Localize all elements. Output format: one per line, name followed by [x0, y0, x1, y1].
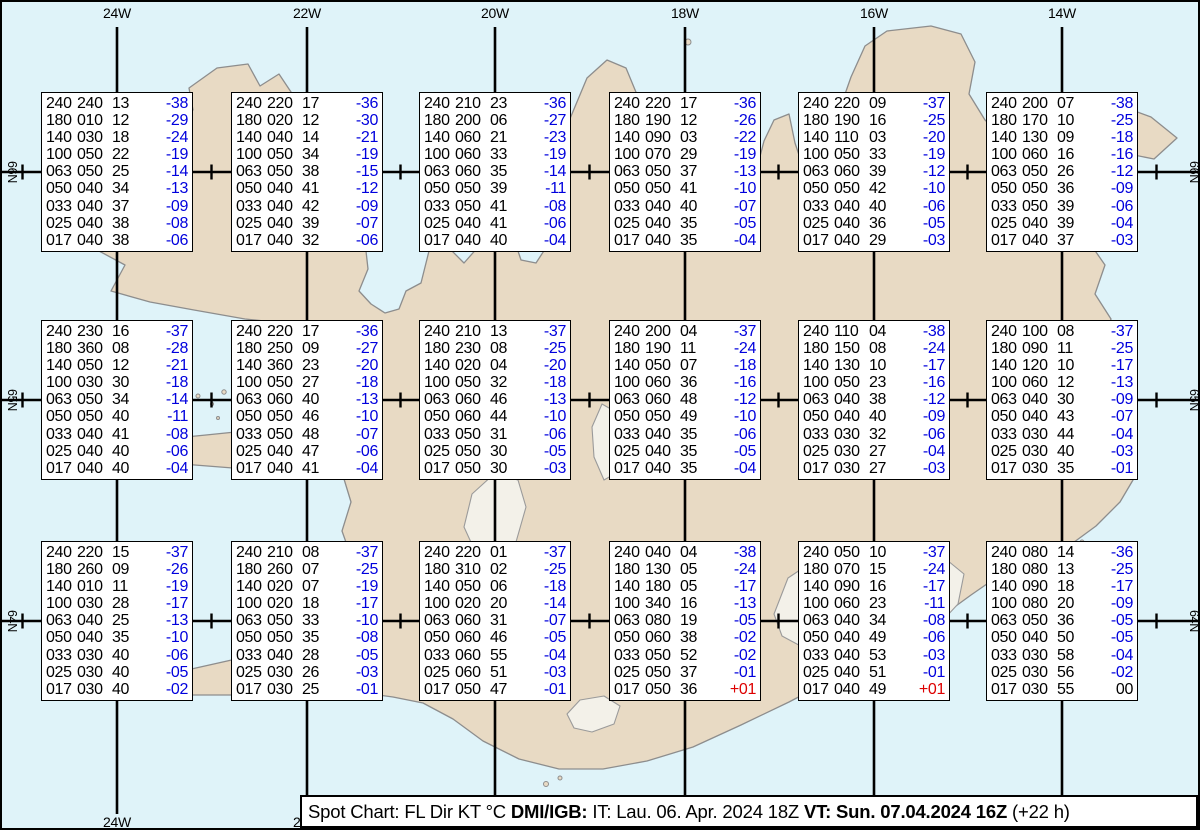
flight-level-value: 025 — [236, 443, 267, 460]
wind-direction-value: 090 — [834, 578, 869, 595]
station-level-row: 14004014-21 — [236, 129, 378, 146]
temperature-value: -09 — [897, 408, 945, 425]
station-level-row: 18031002-25 — [424, 561, 566, 578]
station-level-row: 03305039-06 — [991, 198, 1133, 215]
temperature-value: -37 — [708, 323, 756, 340]
flight-level-value: 033 — [424, 426, 455, 443]
temperature-value: -17 — [1085, 578, 1133, 595]
station-level-row: 02504041-06 — [424, 215, 566, 232]
flight-level-value: 025 — [614, 215, 645, 232]
wind-direction-value: 110 — [834, 323, 869, 340]
station-level-row: 02503026-03 — [236, 664, 378, 681]
station-level-row: 06306046-13 — [424, 391, 566, 408]
station-level-row: 05005042-10 — [803, 180, 945, 197]
wind-direction-value: 020 — [267, 578, 302, 595]
wind-speed-value: 31 — [490, 426, 518, 443]
flight-level-value: 140 — [424, 578, 455, 595]
temperature-value: -04 — [330, 460, 378, 477]
temperature-value: -24 — [708, 340, 756, 357]
wind-speed-value: 28 — [302, 647, 330, 664]
wind-speed-value: 09 — [869, 95, 897, 112]
spot-chart-map: 24W22W20W18W16W14W 24W22W20W18W16W14W 66… — [0, 0, 1200, 830]
temperature-value: -37 — [330, 544, 378, 561]
station-level-row: 10002020-14 — [424, 595, 566, 612]
wind-direction-value: 010 — [77, 112, 112, 129]
flight-level-value: 050 — [236, 408, 267, 425]
wind-speed-value: 53 — [869, 647, 897, 664]
temperature-value: -06 — [140, 647, 188, 664]
station-level-row: 02504039-04 — [991, 215, 1133, 232]
station-level-row: 05004040-09 — [803, 408, 945, 425]
temperature-value: -04 — [518, 232, 566, 249]
wind-speed-value: 36 — [1057, 612, 1085, 629]
station-level-row: 06306040-13 — [236, 391, 378, 408]
temperature-value: -04 — [1085, 647, 1133, 664]
station-level-row: 02503056-02 — [991, 664, 1133, 681]
flight-level-value: 025 — [614, 664, 645, 681]
temperature-value: -08 — [330, 629, 378, 646]
station-level-row: 24004004-38 — [614, 544, 756, 561]
wind-speed-value: 06 — [490, 112, 518, 129]
wind-speed-value: 35 — [680, 215, 708, 232]
wind-direction-value: 040 — [267, 180, 302, 197]
flight-level-value: 140 — [991, 578, 1022, 595]
wind-direction-value: 210 — [455, 95, 490, 112]
flight-level-value: 033 — [236, 198, 267, 215]
station-level-row: 02504035-05 — [614, 215, 756, 232]
station-level-row: 05006046-05 — [424, 629, 566, 646]
wind-speed-value: 03 — [680, 129, 708, 146]
station-level-row: 06305038-15 — [236, 163, 378, 180]
station-level-row: 14009018-17 — [991, 578, 1133, 595]
temperature-value: -37 — [518, 544, 566, 561]
temperature-value: -06 — [518, 215, 566, 232]
temperature-value: +01 — [708, 681, 756, 698]
temperature-value: -16 — [708, 374, 756, 391]
flight-level-value: 063 — [236, 391, 267, 408]
wind-speed-value: 07 — [302, 578, 330, 595]
wind-direction-value: 040 — [77, 215, 112, 232]
temperature-value: -05 — [330, 647, 378, 664]
wind-direction-value: 040 — [1022, 232, 1057, 249]
flight-level-value: 063 — [46, 612, 77, 629]
station-level-row: 24024013-38 — [46, 95, 188, 112]
flight-level-value: 140 — [236, 357, 267, 374]
wind-direction-value: 070 — [645, 146, 680, 163]
flight-level-value: 025 — [236, 215, 267, 232]
wind-direction-value: 030 — [77, 129, 112, 146]
temperature-value: -06 — [1085, 198, 1133, 215]
temperature-value: -02 — [708, 647, 756, 664]
wind-direction-value: 020 — [267, 595, 302, 612]
wind-direction-value: 240 — [77, 95, 112, 112]
temperature-value: -03 — [518, 460, 566, 477]
wind-direction-value: 040 — [1022, 215, 1057, 232]
flight-level-value: 017 — [991, 232, 1022, 249]
wind-speed-value: 37 — [112, 198, 140, 215]
flight-level-value: 240 — [614, 323, 645, 340]
station-level-row: 01704040-04 — [424, 232, 566, 249]
wind-direction-value: 040 — [834, 391, 869, 408]
temperature-value: -06 — [140, 443, 188, 460]
flight-level-value: 100 — [424, 374, 455, 391]
station-level-row: 18025009-27 — [236, 340, 378, 357]
station-data-box: 24024013-3818001012-2914003018-241000502… — [41, 92, 193, 252]
wind-speed-value: 32 — [302, 232, 330, 249]
wind-direction-value: 040 — [834, 215, 869, 232]
wind-direction-value: 040 — [834, 232, 869, 249]
flight-level-value: 033 — [803, 426, 834, 443]
wind-speed-value: 14 — [1057, 544, 1085, 561]
flight-level-value: 240 — [991, 544, 1022, 561]
wind-direction-value: 040 — [267, 460, 302, 477]
station-level-row: 01703040-02 — [46, 681, 188, 698]
temperature-value: -06 — [897, 198, 945, 215]
wind-direction-value: 080 — [645, 612, 680, 629]
wind-speed-value: 08 — [112, 340, 140, 357]
wind-direction-value: 030 — [1022, 443, 1057, 460]
wind-direction-value: 060 — [455, 664, 490, 681]
station-level-row: 10005032-18 — [424, 374, 566, 391]
wind-direction-value: 090 — [1022, 340, 1057, 357]
temperature-value: -05 — [140, 664, 188, 681]
title-bar-segment: Spot Chart: FL Dir KT °C — [308, 801, 511, 822]
station-level-row: 01704049+01 — [803, 681, 945, 698]
wind-speed-value: 34 — [869, 612, 897, 629]
flight-level-value: 240 — [614, 544, 645, 561]
wind-direction-value: 100 — [1022, 323, 1057, 340]
wind-speed-value: 07 — [680, 357, 708, 374]
lon-label-top: 20W — [481, 6, 509, 21]
wind-speed-value: 30 — [1057, 391, 1085, 408]
station-level-row: 10006012-13 — [991, 374, 1133, 391]
wind-direction-value: 010 — [77, 578, 112, 595]
wind-speed-value: 37 — [680, 163, 708, 180]
flight-level-value: 033 — [46, 426, 77, 443]
wind-direction-value: 060 — [645, 374, 680, 391]
wind-speed-value: 07 — [302, 561, 330, 578]
flight-level-value: 140 — [46, 129, 77, 146]
wind-direction-value: 190 — [645, 112, 680, 129]
flight-level-value: 063 — [424, 612, 455, 629]
flight-level-value: 100 — [424, 146, 455, 163]
station-level-row: 14036023-20 — [236, 357, 378, 374]
wind-speed-value: 49 — [680, 408, 708, 425]
temperature-value: -36 — [330, 95, 378, 112]
flight-level-value: 180 — [424, 561, 455, 578]
wind-direction-value: 220 — [455, 544, 490, 561]
temperature-value: -11 — [140, 408, 188, 425]
temperature-value: -25 — [518, 561, 566, 578]
temperature-value: -38 — [140, 95, 188, 112]
wind-direction-value: 020 — [267, 112, 302, 129]
station-level-row: 06304030-09 — [991, 391, 1133, 408]
temperature-value: -05 — [897, 215, 945, 232]
wind-direction-value: 180 — [645, 578, 680, 595]
wind-direction-value: 040 — [645, 426, 680, 443]
station-level-row: 24020004-37 — [614, 323, 756, 340]
flight-level-value: 180 — [46, 112, 77, 129]
station-level-row: 24022015-37 — [46, 544, 188, 561]
wind-speed-value: 05 — [680, 578, 708, 595]
station-level-row: 01704037-03 — [991, 232, 1133, 249]
temperature-value: -01 — [897, 664, 945, 681]
wind-speed-value: 36 — [1057, 180, 1085, 197]
wind-direction-value: 040 — [267, 198, 302, 215]
station-level-row: 18019011-24 — [614, 340, 756, 357]
flight-level-value: 025 — [46, 664, 77, 681]
flight-level-value: 017 — [236, 232, 267, 249]
flight-level-value: 025 — [803, 664, 834, 681]
temperature-value: -17 — [330, 595, 378, 612]
station-level-row: 14006021-23 — [424, 129, 566, 146]
temperature-value: -18 — [518, 374, 566, 391]
flight-level-value: 025 — [236, 664, 267, 681]
flight-level-value: 240 — [236, 544, 267, 561]
flight-level-value: 050 — [46, 629, 77, 646]
wind-speed-value: 02 — [490, 561, 518, 578]
flight-level-value: 050 — [803, 629, 834, 646]
wind-speed-value: 12 — [302, 112, 330, 129]
wind-direction-value: 030 — [77, 681, 112, 698]
wind-speed-value: 23 — [869, 374, 897, 391]
flight-level-value: 033 — [991, 198, 1022, 215]
wind-speed-value: 27 — [869, 443, 897, 460]
wind-direction-value: 040 — [1022, 408, 1057, 425]
wind-speed-value: 16 — [869, 112, 897, 129]
flight-level-value: 017 — [46, 681, 77, 698]
flight-level-value: 100 — [46, 146, 77, 163]
wind-direction-value: 040 — [834, 664, 869, 681]
station-level-row: 05004049-06 — [803, 629, 945, 646]
wind-speed-value: 12 — [680, 112, 708, 129]
flight-level-value: 063 — [803, 612, 834, 629]
lat-label-right: 65N — [1187, 389, 1200, 411]
wind-speed-value: 32 — [490, 374, 518, 391]
wind-direction-value: 050 — [645, 357, 680, 374]
station-level-row: 01703025-01 — [236, 681, 378, 698]
flight-level-value: 050 — [614, 629, 645, 646]
station-level-row: 03305031-06 — [424, 426, 566, 443]
station-level-row: 24010008-37 — [991, 323, 1133, 340]
title-bar-bold-segment: VT: Sun. 07.04.2024 16Z — [804, 801, 1007, 822]
wind-direction-value: 120 — [1022, 357, 1057, 374]
station-data-box: 24022017-3618025009-2714036023-201000502… — [231, 320, 383, 480]
flight-level-value: 100 — [803, 146, 834, 163]
flight-level-value: 025 — [424, 443, 455, 460]
flight-level-value: 140 — [46, 357, 77, 374]
wind-speed-value: 43 — [1057, 408, 1085, 425]
wind-direction-value: 060 — [834, 163, 869, 180]
title-bar-segment: (+22 h) — [1007, 801, 1070, 822]
temperature-value: -07 — [518, 612, 566, 629]
wind-speed-value: 35 — [490, 163, 518, 180]
wind-direction-value: 260 — [77, 561, 112, 578]
wind-speed-value: 25 — [302, 681, 330, 698]
wind-speed-value: 55 — [490, 647, 518, 664]
station-data-box: 24021008-3718026007-2514002007-191000201… — [231, 541, 383, 701]
wind-speed-value: 44 — [1057, 426, 1085, 443]
temperature-value: -12 — [330, 180, 378, 197]
temperature-value: -06 — [330, 232, 378, 249]
station-data-box: 24021023-3618020006-2714006021-231000603… — [419, 92, 571, 252]
wind-speed-value: 39 — [869, 163, 897, 180]
temperature-value: -25 — [1085, 340, 1133, 357]
wind-direction-value: 050 — [645, 163, 680, 180]
flight-level-value: 033 — [236, 647, 267, 664]
flight-level-value: 180 — [614, 340, 645, 357]
flight-level-value: 063 — [46, 391, 77, 408]
temperature-value: -05 — [518, 443, 566, 460]
wind-direction-value: 040 — [77, 460, 112, 477]
flight-level-value: 017 — [424, 232, 455, 249]
flight-level-value: 033 — [424, 647, 455, 664]
wind-direction-value: 040 — [645, 232, 680, 249]
wind-speed-value: 08 — [302, 544, 330, 561]
station-level-row: 01704032-06 — [236, 232, 378, 249]
wind-direction-value: 130 — [834, 357, 869, 374]
station-level-row: 03305048-07 — [236, 426, 378, 443]
wind-speed-value: 05 — [680, 561, 708, 578]
wind-direction-value: 220 — [77, 544, 112, 561]
temperature-value: +01 — [897, 681, 945, 698]
wind-speed-value: 09 — [302, 340, 330, 357]
flight-level-value: 240 — [236, 323, 267, 340]
flight-level-value: 017 — [46, 460, 77, 477]
wind-speed-value: 33 — [869, 146, 897, 163]
wind-speed-value: 17 — [302, 323, 330, 340]
wind-direction-value: 020 — [455, 357, 490, 374]
wind-direction-value: 040 — [645, 460, 680, 477]
wind-direction-value: 050 — [455, 426, 490, 443]
station-level-row: 02504038-08 — [46, 215, 188, 232]
temperature-value: -06 — [708, 426, 756, 443]
temperature-value: -24 — [140, 129, 188, 146]
station-level-row: 18009011-25 — [991, 340, 1133, 357]
station-level-row: 01704038-06 — [46, 232, 188, 249]
wind-direction-value: 050 — [267, 374, 302, 391]
station-level-row: 10008020-09 — [991, 595, 1133, 612]
station-level-row: 10005034-19 — [236, 146, 378, 163]
wind-direction-value: 050 — [645, 408, 680, 425]
temperature-value: -04 — [1085, 215, 1133, 232]
flight-level-value: 100 — [46, 374, 77, 391]
flight-level-value: 063 — [46, 163, 77, 180]
station-level-row: 05005046-10 — [236, 408, 378, 425]
wind-direction-value: 050 — [834, 544, 869, 561]
wind-speed-value: 10 — [869, 357, 897, 374]
lon-label-top: 16W — [860, 6, 888, 21]
wind-direction-value: 190 — [834, 112, 869, 129]
wind-speed-value: 20 — [490, 595, 518, 612]
wind-speed-value: 09 — [1057, 129, 1085, 146]
station-level-row: 06306035-14 — [424, 163, 566, 180]
wind-direction-value: 050 — [1022, 180, 1057, 197]
temperature-value: -13 — [140, 612, 188, 629]
station-level-row: 06306031-07 — [424, 612, 566, 629]
station-data-box: 24010008-3718009011-2514012010-171000601… — [986, 320, 1138, 480]
station-level-row: 02503040-03 — [991, 443, 1133, 460]
temperature-value: -37 — [897, 544, 945, 561]
station-level-row: 18019016-25 — [803, 112, 945, 129]
temperature-value: -09 — [140, 198, 188, 215]
lon-label-top: 22W — [293, 6, 321, 21]
wind-speed-value: 26 — [1057, 163, 1085, 180]
wind-direction-value: 040 — [834, 198, 869, 215]
flight-level-value: 240 — [991, 95, 1022, 112]
wind-direction-value: 200 — [455, 112, 490, 129]
station-level-row: 02503027-04 — [803, 443, 945, 460]
flight-level-value: 050 — [803, 180, 834, 197]
flight-level-value: 180 — [803, 340, 834, 357]
lat-label-left: 65N — [5, 389, 19, 411]
flight-level-value: 017 — [236, 460, 267, 477]
title-bar-segment: IT: Lau. 06. Apr. 2024 18Z — [587, 801, 804, 822]
wind-speed-value: 40 — [112, 460, 140, 477]
flight-level-value: 033 — [991, 426, 1022, 443]
station-level-row: 02504035-05 — [614, 443, 756, 460]
station-level-row: 24023016-37 — [46, 323, 188, 340]
wind-direction-value: 030 — [267, 681, 302, 698]
flight-level-value: 017 — [803, 232, 834, 249]
wind-direction-value: 040 — [77, 232, 112, 249]
wind-speed-value: 39 — [302, 215, 330, 232]
station-level-row: 0170305500 — [991, 681, 1133, 698]
station-level-row: 10006023-11 — [803, 595, 945, 612]
flight-level-value: 180 — [991, 561, 1022, 578]
wind-direction-value: 030 — [1022, 664, 1057, 681]
temperature-value: -02 — [708, 629, 756, 646]
station-data-box: 24004004-3818013005-2414018005-171003401… — [609, 541, 761, 701]
wind-speed-value: 41 — [490, 198, 518, 215]
temperature-value: -02 — [1085, 664, 1133, 681]
temperature-value: -25 — [1085, 561, 1133, 578]
wind-speed-value: 36 — [680, 681, 708, 698]
station-data-box: 24022015-3718026009-2614001011-191000302… — [41, 541, 193, 701]
temperature-value: -08 — [897, 612, 945, 629]
temperature-value: -06 — [518, 426, 566, 443]
wind-speed-value: 35 — [1057, 460, 1085, 477]
temperature-value: -36 — [1085, 544, 1133, 561]
wind-direction-value: 250 — [267, 340, 302, 357]
temperature-value: -37 — [140, 544, 188, 561]
temperature-value: -13 — [330, 391, 378, 408]
flight-level-value: 180 — [803, 112, 834, 129]
wind-direction-value: 050 — [1022, 612, 1057, 629]
temperature-value: -24 — [897, 561, 945, 578]
wind-direction-value: 040 — [77, 629, 112, 646]
station-level-row: 18036008-28 — [46, 340, 188, 357]
lon-label-top: 24W — [103, 6, 131, 21]
temperature-value: -18 — [708, 357, 756, 374]
wind-direction-value: 050 — [267, 426, 302, 443]
wind-direction-value: 050 — [77, 146, 112, 163]
wind-speed-value: 40 — [112, 681, 140, 698]
wind-speed-value: 18 — [1057, 578, 1085, 595]
station-level-row: 03304037-09 — [46, 198, 188, 215]
temperature-value: -17 — [708, 578, 756, 595]
station-level-row: 24020007-38 — [991, 95, 1133, 112]
wind-direction-value: 060 — [645, 391, 680, 408]
station-level-row: 05004041-12 — [236, 180, 378, 197]
wind-direction-value: 050 — [77, 408, 112, 425]
wind-speed-value: 58 — [1057, 647, 1085, 664]
station-level-row: 01704029-03 — [803, 232, 945, 249]
flight-level-value: 240 — [614, 95, 645, 112]
flight-level-value: 100 — [236, 146, 267, 163]
station-level-row: 03303040-06 — [46, 647, 188, 664]
lat-label-left: 64N — [5, 610, 19, 632]
